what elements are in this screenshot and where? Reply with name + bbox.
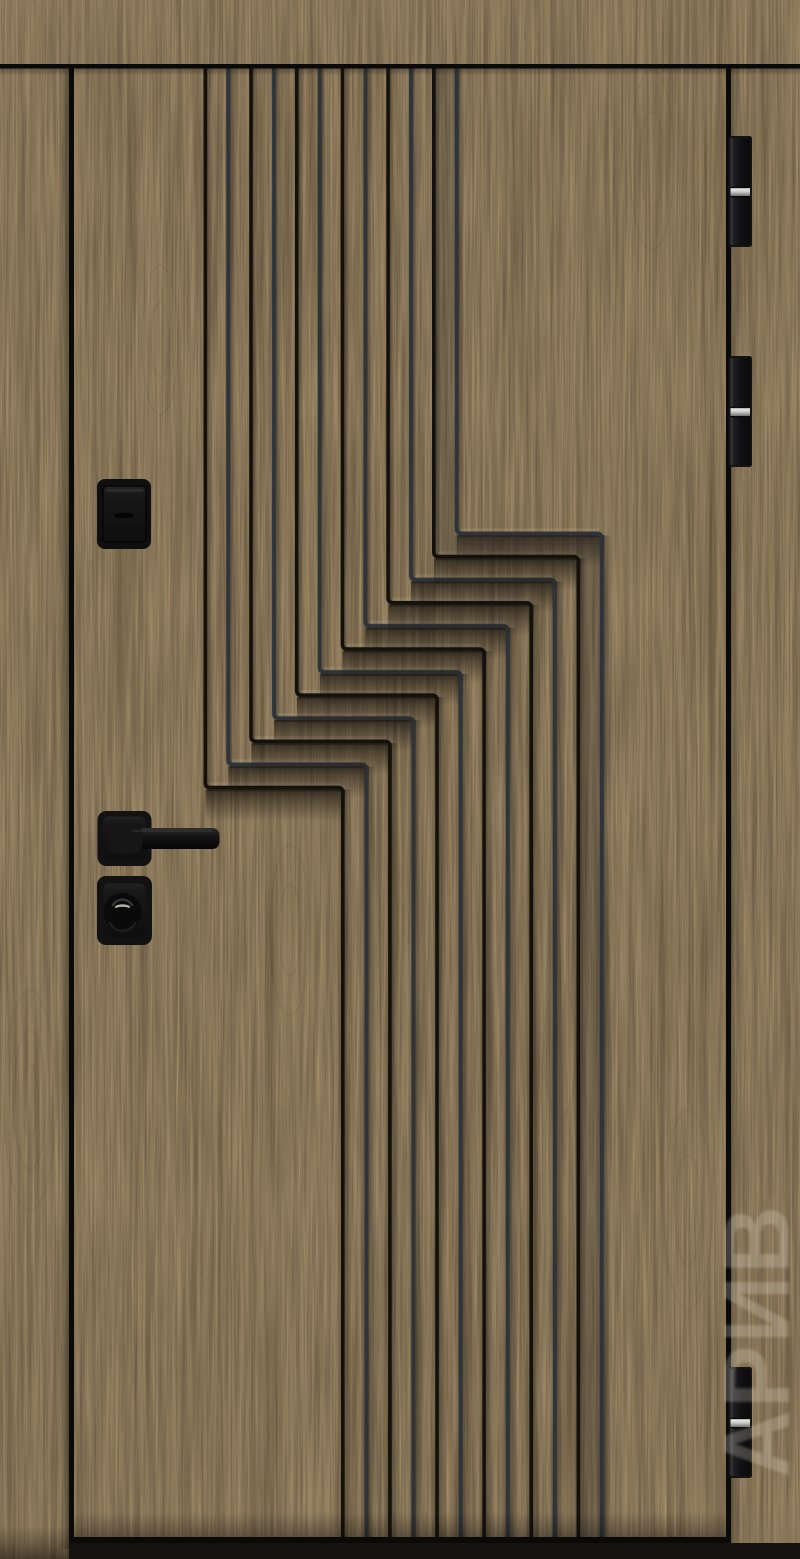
- svg-text:АРИВ: АРИВ: [704, 1204, 800, 1478]
